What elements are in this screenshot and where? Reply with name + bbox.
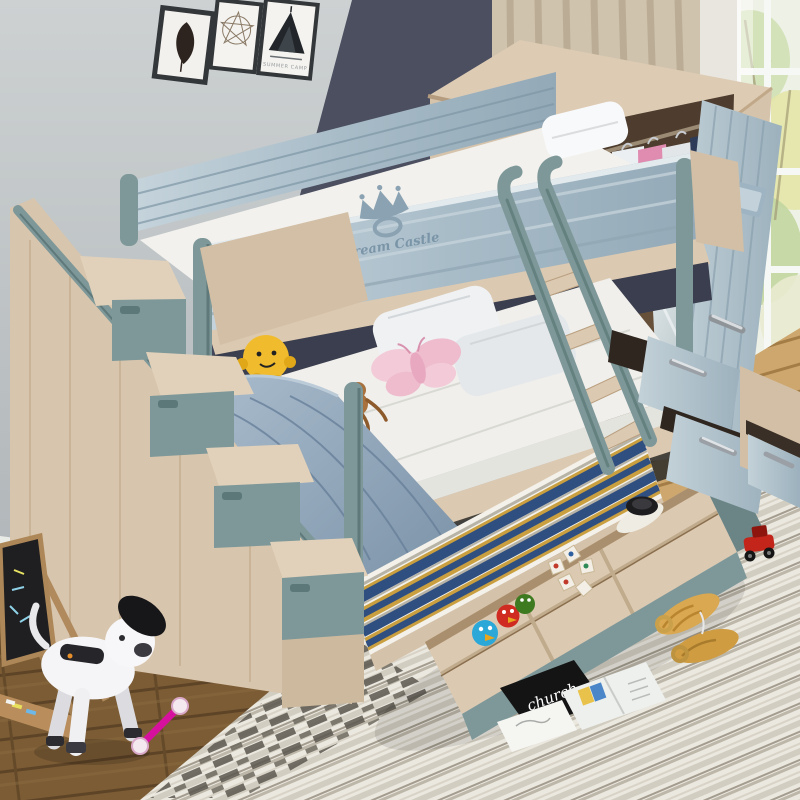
- angry-bird-green: [515, 594, 535, 614]
- frame-star-print: [208, 0, 263, 74]
- bunk-corner-wood: [690, 150, 744, 252]
- angry-bird-blue: [472, 620, 498, 646]
- stair-drawer-3: [214, 482, 300, 548]
- rear-post: [120, 174, 138, 246]
- stair-base: [282, 634, 364, 708]
- frame-leaf-print: [152, 5, 217, 85]
- bedroom-photo: SUMMER CAMP: [0, 0, 800, 800]
- frame-tent-print: SUMMER CAMP: [256, 0, 320, 81]
